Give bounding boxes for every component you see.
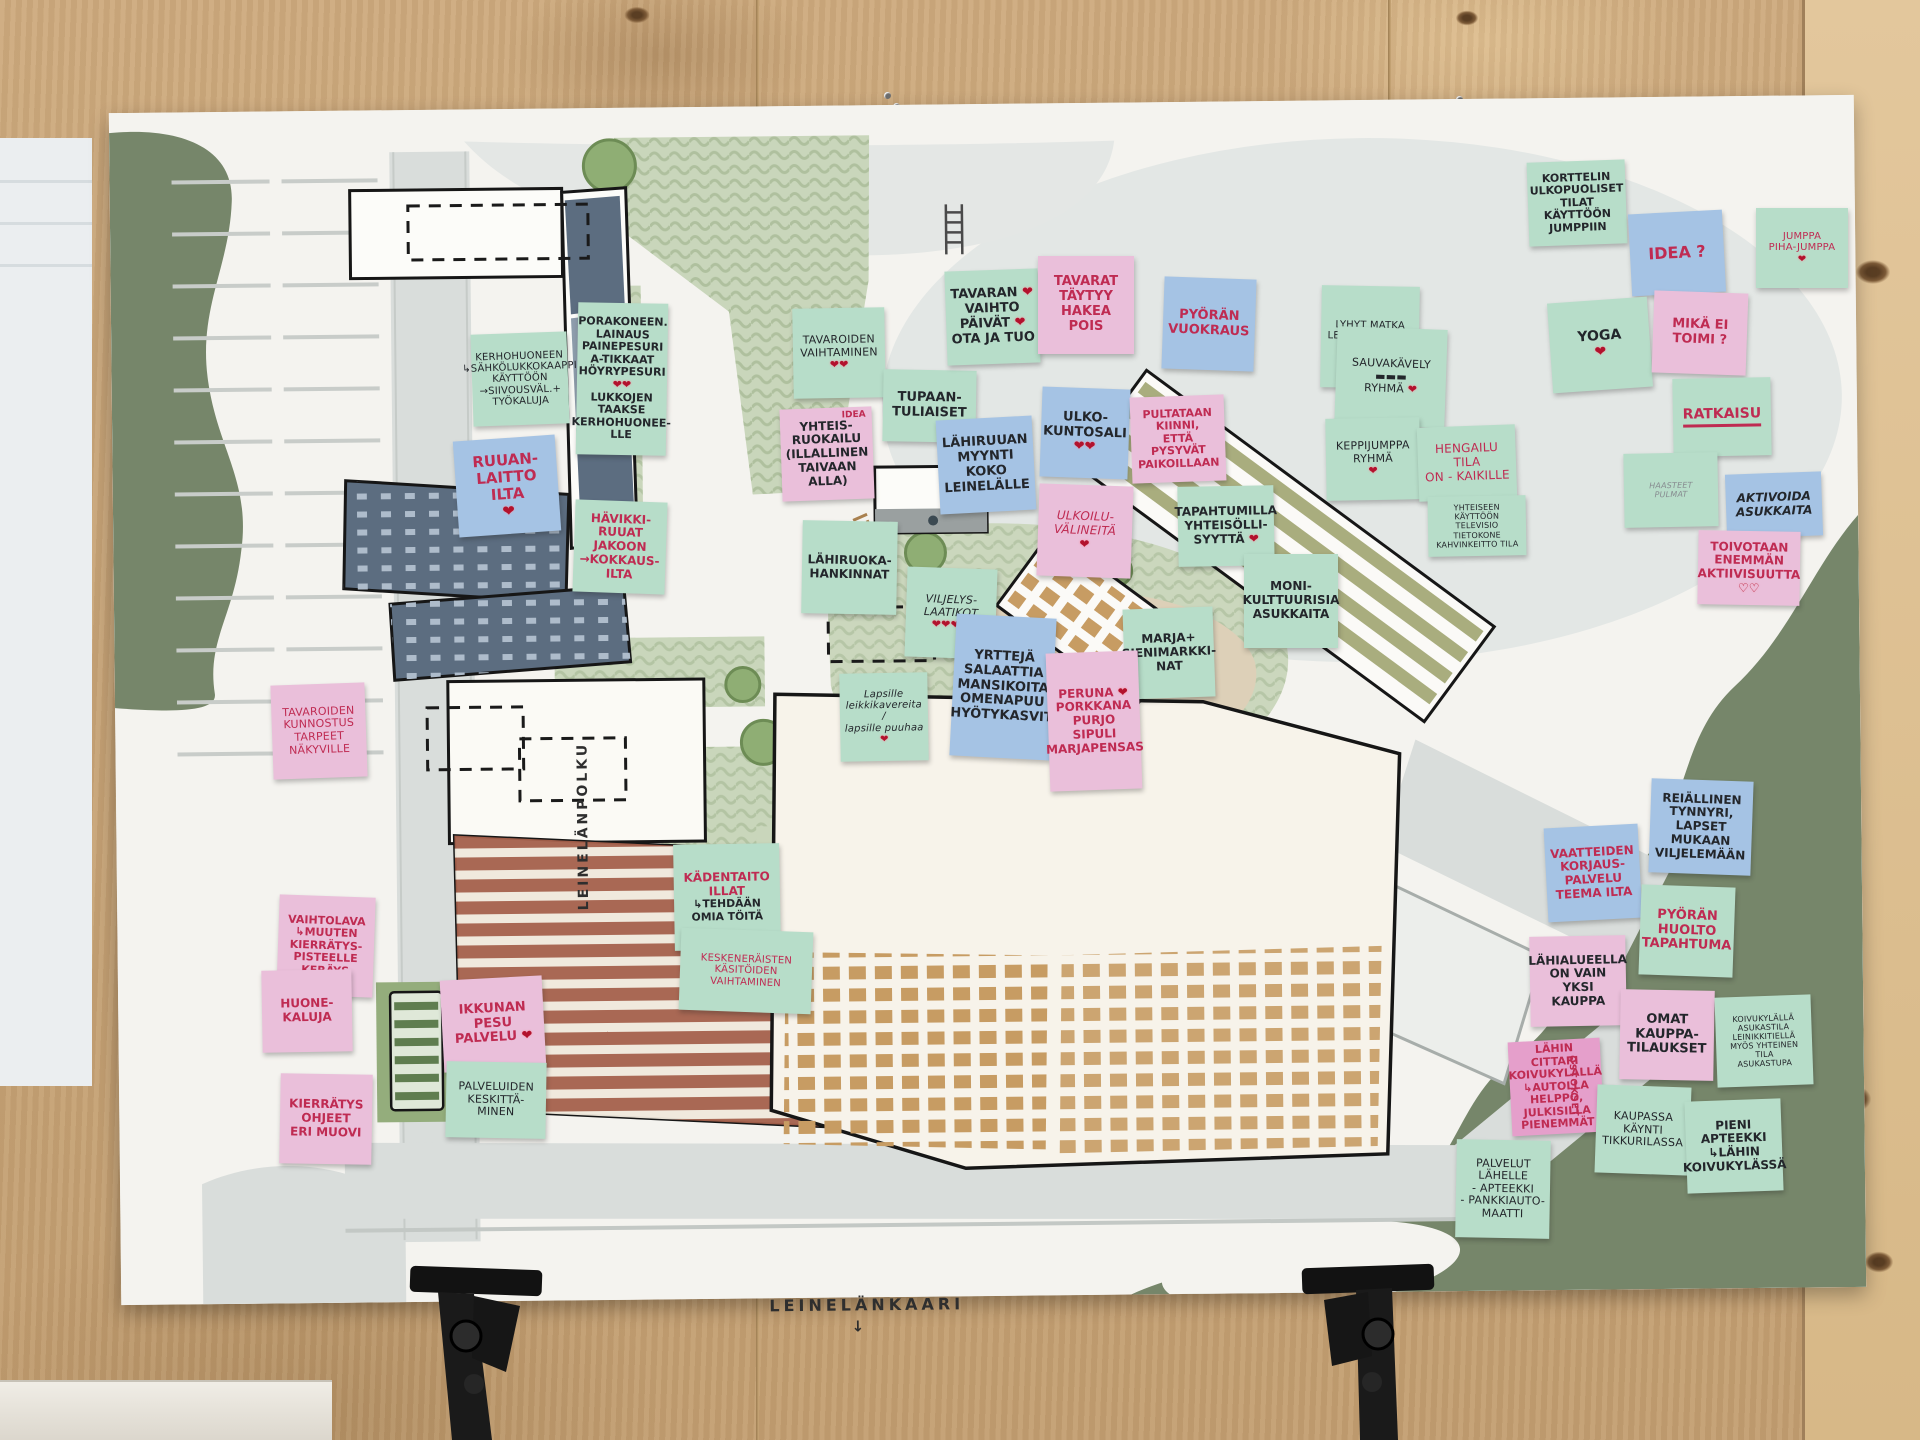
sticky-note-ratkaisu: RATKAISU — [1672, 377, 1771, 457]
sticky-note-keskeneraisten-kasitoiden: KESKENERÄISTENKÄSITÖIDENVAIHTAMINEN — [679, 928, 814, 1015]
sticky-note-porakoneen-lainaus: PORAKONEEN.LAINAUSPAINEPESURIA-TIKKAATHÖ… — [576, 302, 669, 456]
sticky-note-lahin-cittari: LÄHINCITTARIKOIVUKYLÄLLÄ↳AUTOLLAHELPPO,J… — [1508, 1038, 1605, 1137]
sticky-note-omat-kauppatilaukset: OMATKAUPPA-TILAUKSET — [1619, 989, 1715, 1081]
sticky-note-kaupassa-kaynti: KAUPASSAKÄYNTITIKKURILASSA — [1594, 1084, 1691, 1175]
sticky-note-ruuanlaitto-ilta: RUUAN-LAITTOILTA❤ — [453, 435, 561, 538]
sticky-notes-layer: KERHOHUONEEN↳SÄHKÖLUKKOKAAPPIKÄYTTÖÖN→SI… — [0, 0, 1920, 1440]
sticky-note-ulkoiluvalineita: ULKOILU-VÄLINEITÄ❤ — [1036, 483, 1133, 578]
sticky-note-jumppa-pihajumppa: JUMPPAPIHA-JUMPPA❤ — [1756, 208, 1848, 288]
easel-clamp-right — [1298, 1258, 1438, 1440]
sticky-note-hengailutila: HENGAILUTILAON - KAIKILLE — [1417, 424, 1518, 501]
sticky-note-lahiruoka-hankinnat: LÄHIRUOKA-HANKINNAT — [801, 520, 898, 615]
sticky-note-peruna-porkkana: PERUNA ❤PORKKANAPURJOSIPULIMARJAPENSAS — [1046, 650, 1143, 791]
sticky-note-mika-ei-toimi: MIKÄ EITOIMI ? — [1652, 290, 1749, 375]
sticky-note-yhteisruokailu: YHTEIS-RUOKAILU(ILLALLINENTAIVAAN ALLA)I… — [779, 406, 874, 501]
sticky-note-pieni-apteekki: PIENIAPTEEKKI↳LÄHINKOIVUKYLÄSSÄ — [1684, 1098, 1783, 1193]
sticky-note-havikkiruuat: HÄVIKKI-RUUATJAKOON→KOKKAUS-ILTA — [572, 499, 667, 594]
sticky-note-kerhohuoneen-kaappi: KERHOHUONEEN↳SÄHKÖLUKKOKAAPPIKÄYTTÖÖN→SI… — [470, 331, 569, 426]
sticky-note-tavarat-taytyy-hakea: TAVARATTÄYTYYHAKEAPOIS — [1038, 256, 1134, 354]
sticky-note-haasteet-pulmat: HAASTEETPULMAT — [1623, 452, 1718, 528]
sticky-note-huonekaluja: HUONE-KALUJA — [261, 969, 352, 1053]
sticky-note-yrtteja-salaattia: YRTTEJÄSALAATTIAMANSIKOITAOMENAPUUHYÖTYK… — [949, 613, 1056, 760]
sticky-note-idea-kysymys: IDEA ? — [1628, 210, 1726, 297]
sticky-note-ikkunanpesu: IKKUNANPESUPALVELU ❤ — [440, 975, 547, 1072]
sticky-note-lahialueella-yksi-kauppa: LÄHIALUEELLAON VAINYKSI KAUPPA — [1529, 935, 1627, 1027]
sticky-note-palvelut-lahelle: PALVELUTLÄHELLE- APTEEKKI- PANKKIAUTO-MA… — [1455, 1139, 1551, 1239]
sticky-note-ulkokuntosali: ULKO-KUNTOSALI❤❤ — [1039, 386, 1130, 479]
sticky-note-reiallinen-tynnyri: REIÄLLINENTYNNYRI,LAPSETMUKAANVILJELEMÄÄ… — [1648, 778, 1753, 876]
sticky-note-keppijumppa-ryhma: KEPPIJUMPPARYHMÄ❤ — [1325, 417, 1420, 501]
sticky-note-yoga: YOGA❤ — [1547, 297, 1653, 394]
sticky-note-pyoran-vuokraus: PYÖRÄNVUOKRAUS — [1161, 276, 1256, 371]
sticky-note-aktivoida-asukkaita: AKTIVOIDAASUKKAITA — [1725, 471, 1823, 538]
sticky-note-koivukylalla-asukastila: KOIVUKYLÄLLÄASUKASTILALEINIKKITIELLÄMYÖS… — [1714, 994, 1813, 1087]
sticky-note-korttelin-ulkopuoliset: KORTTELINULKOPUOLISETTILATKÄYTTÖÖNJUMPPI… — [1527, 159, 1628, 246]
sticky-note-tavaran-vaihtopaivat: TAVARAN ❤VAIHTOPÄIVÄT ❤OTA JA TUO — [944, 268, 1040, 365]
sticky-note-monikulttuurisia: MONI-KULTTUURISIAASUKKAITA — [1244, 554, 1338, 648]
sticky-note-tavaroiden-kunnostus: TAVAROIDENKUNNOSTUSTARPEETNÄKYVILLE — [270, 682, 367, 779]
sticky-note-sauvakavely-ryhma: SAUVAKÄVELY▬▬▬RYHMÄ ❤ — [1334, 326, 1447, 428]
sticky-note-kierratysohjeet: KIERRÄTYSOHJEETERI MUOVI — [279, 1073, 373, 1165]
easel-clamp-left — [408, 1262, 548, 1440]
sticky-note-yhteiseen-kayttoon: YHTEISEEN KÄYTTÖÖNTELEVISIOTIETOKONEKAHV… — [1427, 495, 1526, 557]
sticky-note-palveluiden-keskittaminen: PALVELUIDENKESKITTÄ-MINEN — [445, 1061, 546, 1139]
sticky-note-lahiruuan-myynti: LÄHIRUUANMYYNTIKOKOLEINELÄLLE — [936, 416, 1037, 515]
sticky-note-toivotaan-aktiivisuutta: TOIVOTAANENEMMÄNAKTIIVISUUTTA♡♡ — [1697, 530, 1800, 606]
sticky-note-pyoran-huolto: PYÖRÄNHUOLTOTAPAHTUMA — [1638, 884, 1735, 977]
sticky-note-pultataan-kiinni: PULTATAANKIINNI,ETTÄ PYSYVÄTPAIKOILLAAN — [1130, 394, 1227, 483]
photo-scene: LEINELÄNPOLKU LEINELÄNKAARI ↓ KERHOHUONE… — [0, 0, 1920, 1440]
sticky-note-tavaroiden-vaihtaminen: TAVAROIDENVAIHTAMINEN❤❤ — [792, 307, 886, 399]
sticky-note-lapsille-leikkikavereita: Lapsilleleikkikavereita /lapsille puuhaa… — [839, 672, 929, 762]
sticky-note-vaatteiden-korjauspalvelu: VAATTEIDENKORJAUS-PALVELUTEEMA ILTA — [1544, 824, 1643, 923]
